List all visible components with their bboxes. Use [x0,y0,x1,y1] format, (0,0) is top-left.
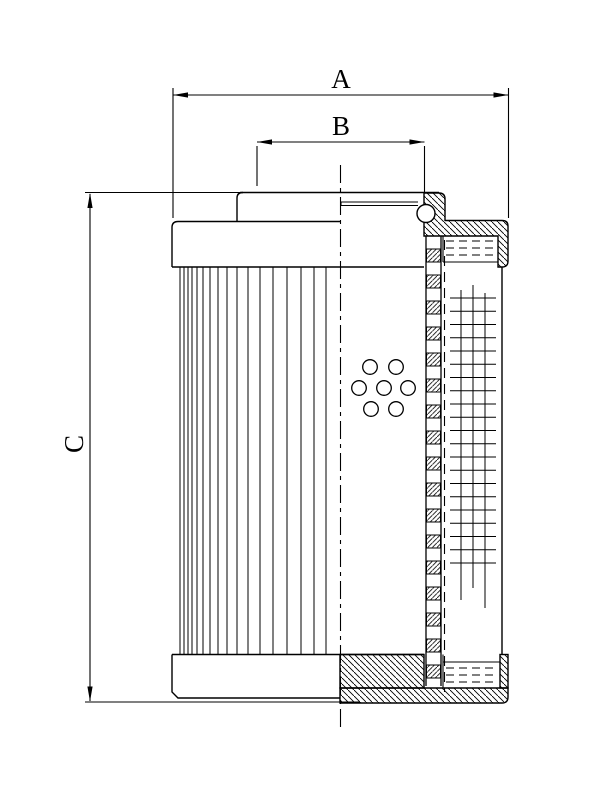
bottom-cap-section-lip [500,655,508,689]
core-tube-segment [427,509,441,522]
dim-a-label: A [331,64,351,94]
dim-a-arrow-left [173,92,188,97]
filter-element-technical-drawing: A B C [0,0,612,792]
perforation-hole [389,360,404,375]
dim-b-arrow-left [257,139,272,144]
boss-left-edge [237,193,243,222]
core-tube-segment [427,561,441,574]
perforation-hole [364,402,379,417]
core-tube-segment [427,353,441,366]
media-dashes [446,241,497,682]
dimension-a: A [173,64,509,218]
core-tube-segment [427,275,441,288]
o-ring [417,205,435,223]
core-tube-segment [427,639,441,652]
cap-band-left-edge [172,222,178,268]
core-tube-segment [427,613,441,626]
perforation-hole [363,360,378,375]
perforation-holes [352,360,416,417]
core-tube-segment [427,587,441,600]
dim-b-label: B [332,111,350,141]
core-tube-segment [427,535,441,548]
drawing-page: A B C [0,0,612,792]
perforation-hole [401,381,416,396]
core-tube-segment [427,431,441,444]
dim-c-arrow-top [87,193,92,208]
bottom-cap-section-plate [340,688,508,703]
pleats [180,267,326,655]
perforation-hole [352,381,367,396]
filter-element [172,165,508,728]
core-tube-segment [427,379,441,392]
dim-a-arrow-right [494,92,509,97]
core-tube-segment [427,483,441,496]
dim-c-label: C [59,435,89,453]
core-tube-segment [427,301,441,314]
perforation-hole [389,402,404,417]
core-tube [426,236,441,686]
bottom-cap-left-edge [172,655,340,699]
dim-c-arrow-bottom [87,687,92,702]
core-tube-segment [427,249,441,262]
bottom-cap-section-main [340,655,424,689]
wire-mesh [450,285,496,608]
core-tube-segment [427,405,441,418]
dim-b-arrow-right [410,139,425,144]
perforation-hole [377,381,392,396]
core-tube-segment [427,457,441,470]
core-tube-segment [427,327,441,340]
core-tube-segment [427,665,441,678]
